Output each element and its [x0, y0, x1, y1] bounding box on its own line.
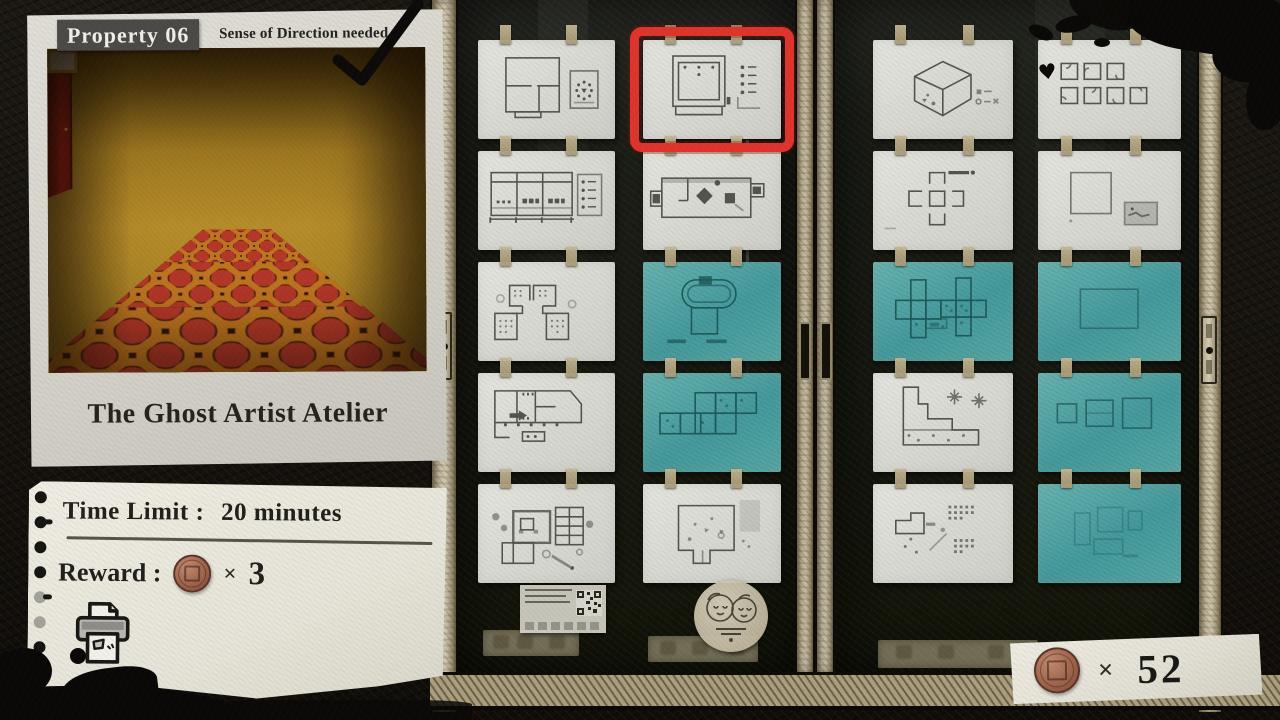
floorplan-sketch-l-shape: [647, 487, 777, 580]
tape-strip: [566, 247, 577, 266]
floorplan-right-r5c1[interactable]: [873, 484, 1013, 583]
reward-count: 3: [248, 556, 266, 593]
selection-frame: [630, 27, 794, 152]
tape-strip: [500, 469, 511, 488]
floorplan-left-r4c1[interactable]: [478, 373, 615, 472]
tape-strip: [963, 247, 974, 266]
tape-strip: [1130, 358, 1141, 377]
photo-vignette: [47, 47, 426, 373]
reward-line: Reward : × 3: [58, 553, 266, 593]
tape-strip: [500, 247, 511, 266]
floorplan-left-r2c1[interactable]: [478, 151, 615, 250]
tape-strip: [566, 358, 577, 377]
floorplan-sketch-three-squares: [1042, 376, 1176, 469]
floorplan-sketch-seven-squares: [1042, 43, 1176, 136]
label-checkboxes: [525, 622, 601, 630]
floorplan-left-r1c2[interactable]: [643, 40, 781, 139]
tape-strip: [895, 247, 906, 266]
floorplan-right-r2c1[interactable]: [873, 151, 1013, 250]
tape-strip: [566, 136, 577, 155]
binder-hole: [34, 616, 46, 628]
floorplan-left-r5c1[interactable]: [478, 484, 615, 583]
time-limit-label: Time Limit :: [63, 497, 205, 525]
ground-foliage: [70, 648, 86, 664]
tape-strip: [963, 25, 974, 44]
door-handle-middle-right[interactable]: [820, 322, 832, 380]
floorplan-sketch-cube-iso: [877, 43, 1009, 136]
binder-hole: [34, 541, 46, 553]
floorplan-sketch-stairs-plan: [877, 376, 1009, 469]
door-right-papers: [873, 40, 1181, 583]
coin-count: 52: [1137, 644, 1185, 693]
tape-strip: [895, 136, 906, 155]
hand-drawn-underline: [66, 536, 432, 545]
floorplan-sketch-single-square: [1042, 154, 1176, 247]
floorplan-sketch-plus-shape: [877, 154, 1009, 247]
time-limit-line: Time Limit : 20 minutes: [63, 497, 343, 527]
reward-label: Reward :: [58, 557, 162, 588]
floorplan-left-r1c1[interactable]: [478, 40, 615, 139]
tape-strip: [665, 247, 676, 266]
tape-strip: [963, 136, 974, 155]
floorplan-right-r3c2[interactable]: [1038, 262, 1181, 361]
floorplan-right-r1c1[interactable]: [873, 40, 1013, 139]
mascot-faces-icon: [694, 580, 768, 652]
floorplan-sketch-cross-grid: [877, 265, 1009, 358]
property-title: The Ghost Artist Atelier: [29, 397, 447, 431]
floorplan-left-r3c1[interactable]: [478, 262, 615, 361]
tape-strip: [895, 469, 906, 488]
tape-strip: [566, 25, 577, 44]
tape-strip: [500, 358, 511, 377]
tape-strip: [963, 358, 974, 377]
tape-strip: [665, 358, 676, 377]
ink-blot: [1094, 38, 1110, 47]
floorplan-left-r5c2[interactable]: [643, 484, 781, 583]
tape-strip: [731, 247, 742, 266]
tape-strip: [665, 469, 676, 488]
qr-code-icon: [576, 590, 602, 616]
tape-strip: [1061, 358, 1072, 377]
heart-mark: ♥: [1036, 59, 1058, 85]
floorplan-sketch-grid-cells: [647, 376, 777, 469]
binder-hole: [34, 566, 46, 578]
ground-shadow: [172, 700, 472, 720]
floorplan-left-r2c2[interactable]: [643, 151, 781, 250]
tape-strip: [895, 25, 906, 44]
storefront-screen: Property 06 Sense of Direction needed Th…: [0, 0, 1280, 720]
floorplan-sketch-big-rect: [1042, 265, 1176, 358]
floorplan-sketch-two-wings: [482, 265, 611, 358]
tape-strip: [1061, 136, 1072, 155]
floorplan-right-r1c2[interactable]: [1038, 40, 1181, 139]
tape-strip: [1130, 247, 1141, 266]
completed-checkmark-icon: [330, 0, 426, 96]
window-plaque: [483, 630, 579, 656]
tape-strip: [500, 136, 511, 155]
tape-strip: [963, 469, 974, 488]
floorplan-sketch-hall-diamonds: [647, 154, 777, 247]
tape-strip: [1061, 469, 1072, 488]
mascot-sticker: [694, 580, 768, 652]
tape-strip: [1130, 136, 1141, 155]
floorplan-sketch-faint-plan: [1042, 487, 1176, 580]
floorplan-right-r3c1[interactable]: [873, 262, 1013, 361]
floorplan-right-r2c2[interactable]: [1038, 151, 1181, 250]
tape-strip: [731, 469, 742, 488]
door-handle-middle-left[interactable]: [799, 322, 811, 380]
floorplan-left-r4c2[interactable]: [643, 373, 781, 472]
tape-strip: [1130, 469, 1141, 488]
qr-info-label: [520, 585, 606, 633]
floorplan-sketch-capsule: [647, 265, 777, 358]
tape-strip: [500, 25, 511, 44]
binder-hole: [34, 591, 46, 603]
floorplan-sketch-long-arrow: [482, 376, 611, 469]
property-photo: [47, 47, 426, 373]
coin-icon: [173, 554, 211, 592]
coin-icon: [1034, 647, 1081, 694]
property-number-badge: Property 06: [57, 19, 199, 51]
times-symbol: ×: [1098, 654, 1114, 685]
tape-strip: [1061, 247, 1072, 266]
tape-strip: [895, 358, 906, 377]
floorplan-right-r5c2[interactable]: [1038, 484, 1181, 583]
floorplan-sketch-plan-dots: [877, 487, 1009, 580]
time-limit-value: 20 minutes: [221, 499, 342, 527]
binder-hole: [35, 491, 47, 503]
floorplan-right-r4c2[interactable]: [1038, 373, 1181, 472]
binder-hole: [35, 516, 47, 528]
coin-counter: × 52: [1007, 634, 1262, 704]
floorplan-sketch-elevation-legend: [482, 154, 611, 247]
door-left-papers: [478, 40, 781, 583]
floorplan-left-r3c2[interactable]: [643, 262, 781, 361]
floorplan-sketch-rooms-circle: [482, 43, 611, 136]
door-handle-right[interactable]: [1201, 316, 1217, 384]
tape-strip: [566, 469, 577, 488]
times-symbol: ×: [223, 561, 236, 587]
tape-strip: [731, 358, 742, 377]
floorplan-sketch-complex-plan: [482, 487, 611, 580]
floorplan-right-r4c1[interactable]: [873, 373, 1013, 472]
